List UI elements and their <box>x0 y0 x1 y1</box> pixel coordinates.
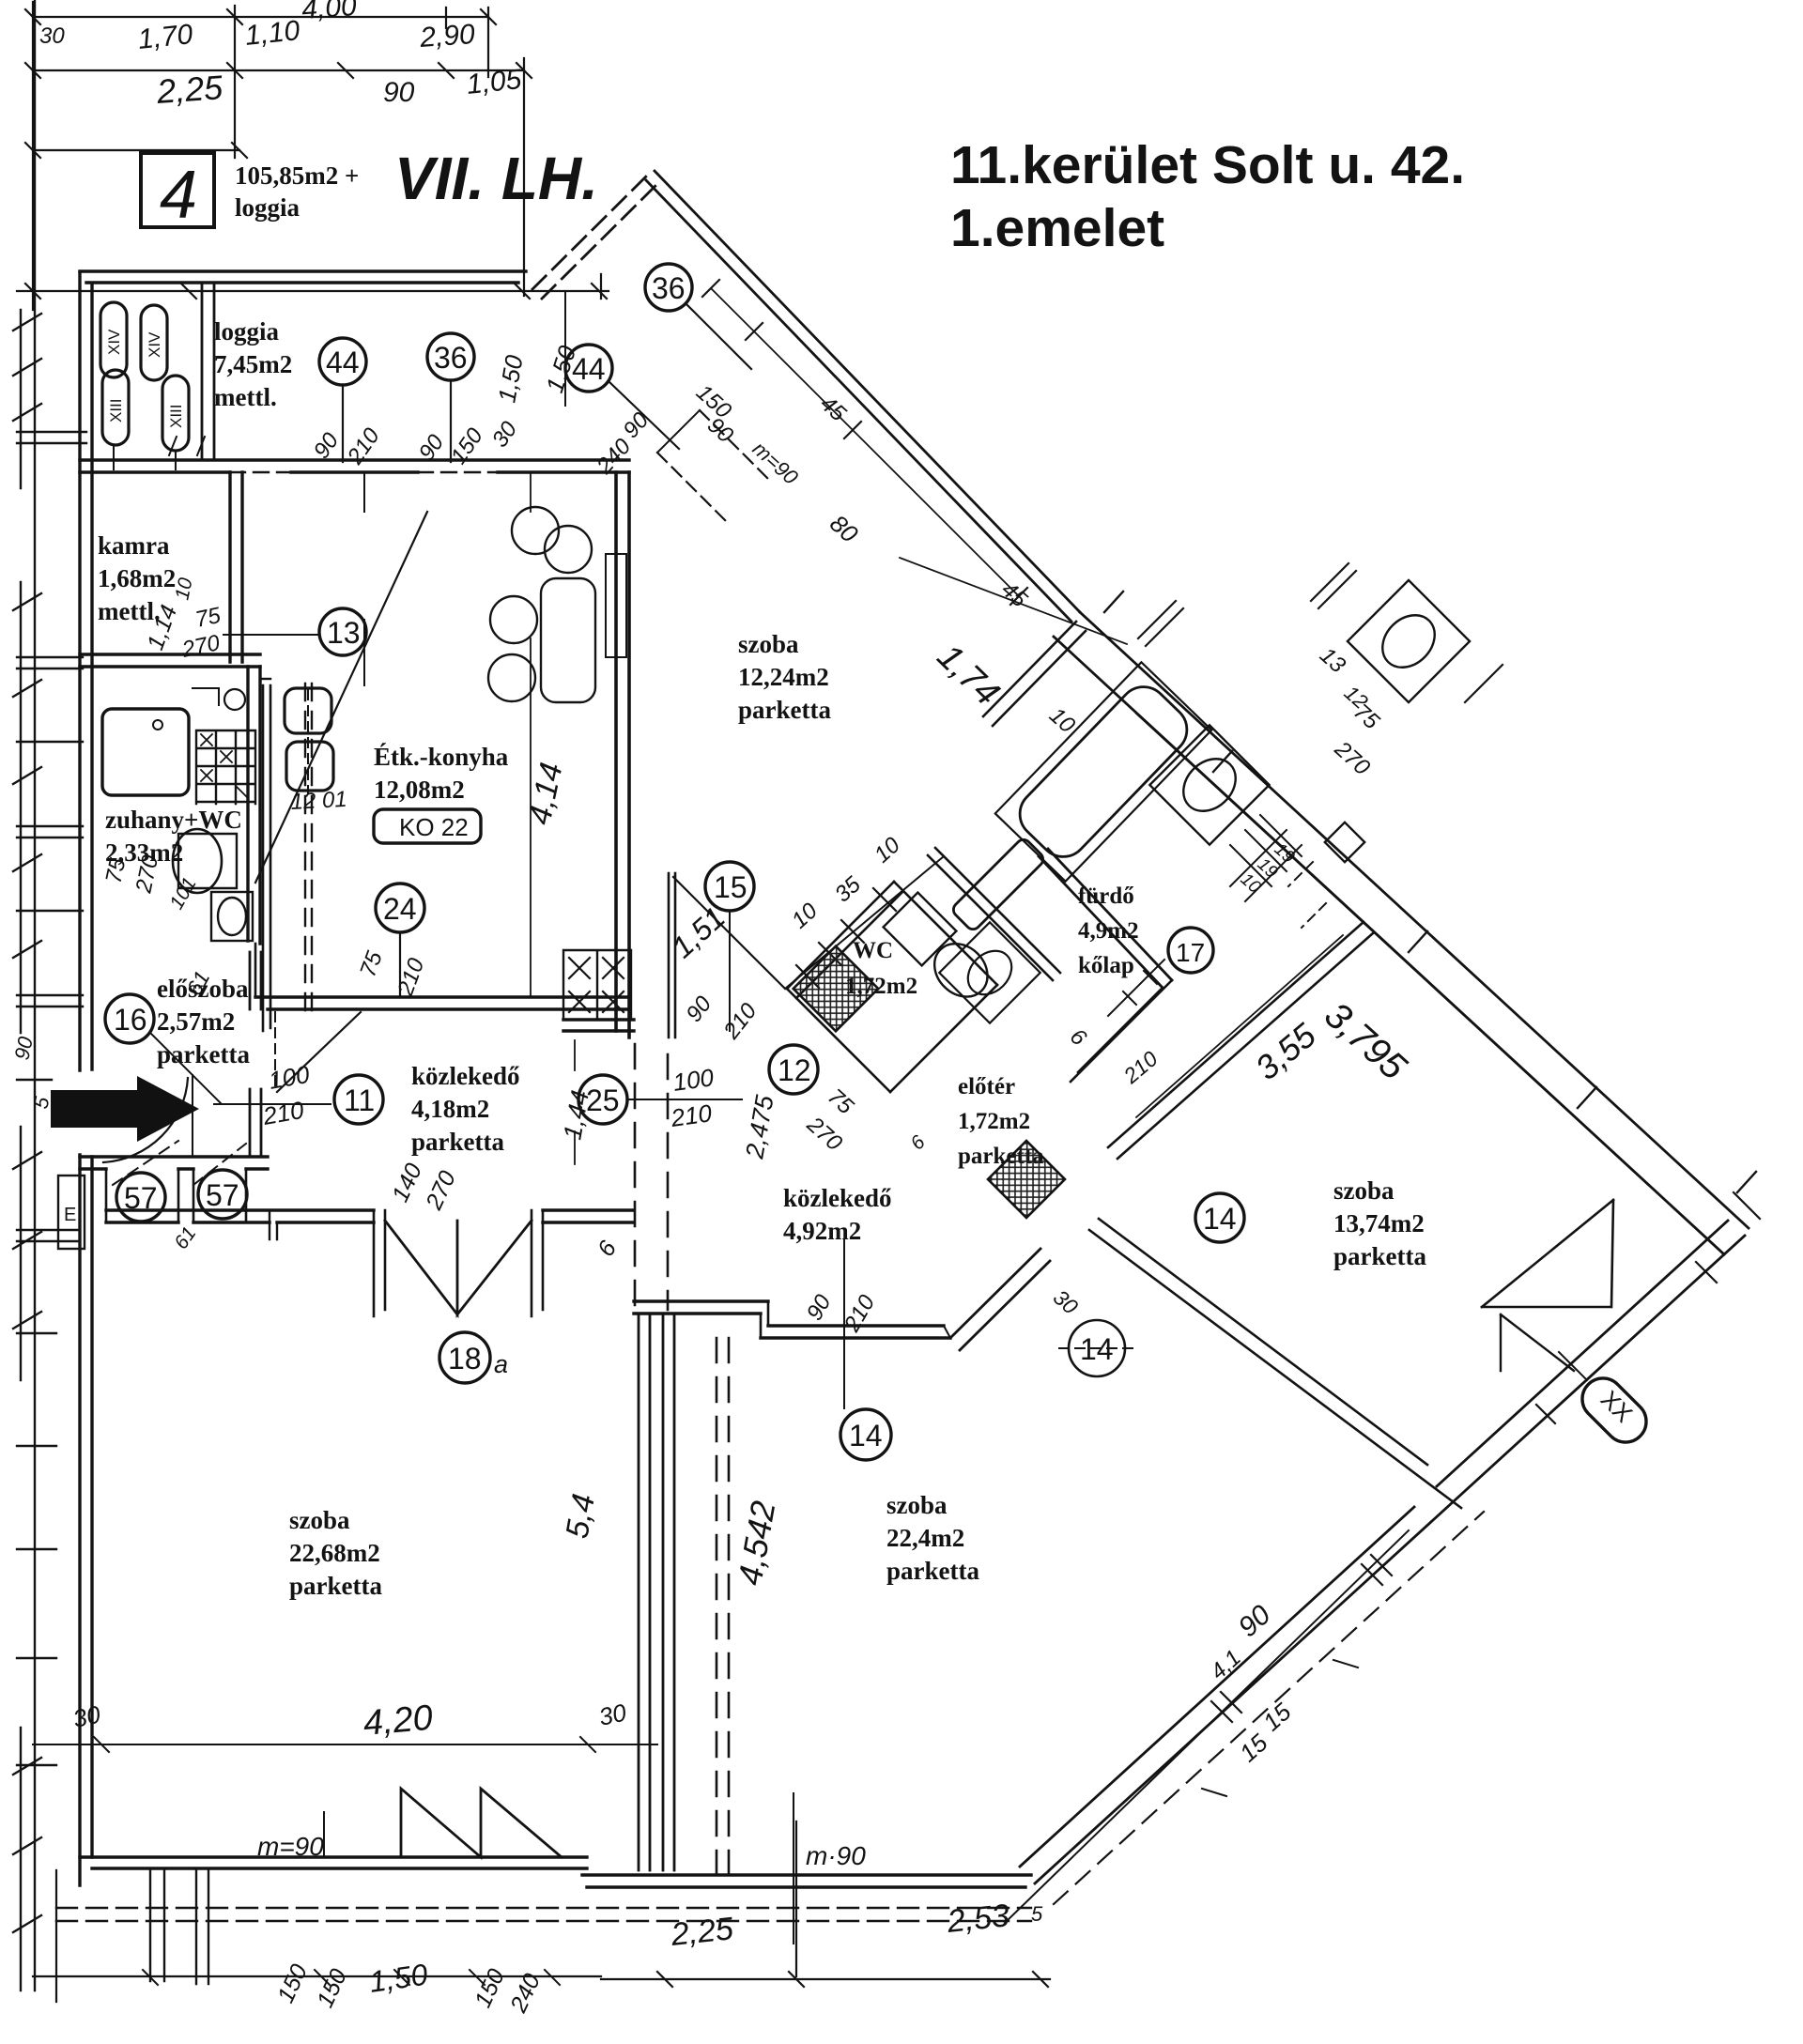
svg-text:KO 22: KO 22 <box>399 813 469 841</box>
svg-text:12: 12 <box>778 1053 811 1087</box>
svg-text:szoba: szoba <box>289 1506 350 1534</box>
svg-text:előtér: előtér <box>958 1074 1015 1099</box>
svg-text:kamra: kamra <box>98 531 170 560</box>
svg-text:fürdő: fürdő <box>1078 884 1134 909</box>
svg-text:XIII: XIII <box>107 398 125 423</box>
svg-text:44: 44 <box>572 352 606 386</box>
svg-text:57: 57 <box>206 1178 239 1212</box>
svg-text:5: 5 <box>1031 1902 1043 1926</box>
svg-text:44: 44 <box>326 346 360 379</box>
svg-text:2,25: 2,25 <box>669 1911 735 1953</box>
svg-text:210: 210 <box>669 1099 715 1132</box>
svg-text:szoba: szoba <box>886 1491 948 1519</box>
svg-text:parketta: parketta <box>886 1557 979 1585</box>
svg-text:11.kerület Solt u. 42.: 11.kerület Solt u. 42. <box>950 135 1465 195</box>
svg-text:105,85m2 +: 105,85m2 + <box>235 161 359 190</box>
svg-text:2,90: 2,90 <box>418 19 476 54</box>
svg-text:loggia: loggia <box>214 317 280 346</box>
svg-text:zuhany+WC: zuhany+WC <box>105 806 242 834</box>
svg-text:közlekedő: közlekedő <box>783 1184 892 1212</box>
svg-text:előszoba: előszoba <box>157 975 249 1003</box>
svg-text:16: 16 <box>114 1003 147 1037</box>
svg-text:15: 15 <box>714 870 747 904</box>
svg-text:parketta: parketta <box>738 696 831 724</box>
svg-text:24: 24 <box>383 892 417 926</box>
svg-text:1,70: 1,70 <box>136 19 194 55</box>
svg-text:Étk.-konyha: Étk.-konyha <box>374 743 509 771</box>
svg-text:2,25: 2,25 <box>155 68 225 111</box>
svg-text:4,9m2: 4,9m2 <box>1078 918 1139 944</box>
svg-text:7,45m2: 7,45m2 <box>214 350 292 378</box>
svg-text:E: E <box>64 1205 76 1225</box>
svg-text:90: 90 <box>383 77 415 108</box>
svg-text:4: 4 <box>160 158 197 233</box>
svg-text:kőlap: kőlap <box>1078 953 1134 978</box>
svg-text:14: 14 <box>1203 1202 1237 1236</box>
svg-text:parketta: parketta <box>289 1572 382 1600</box>
svg-text:13,74m2: 13,74m2 <box>1333 1209 1425 1237</box>
svg-text:XIII: XIII <box>167 404 185 428</box>
svg-text:11: 11 <box>344 1083 375 1117</box>
svg-text:1,72m2: 1,72m2 <box>958 1109 1030 1134</box>
svg-text:100: 100 <box>671 1063 717 1097</box>
svg-text:5,4: 5,4 <box>559 1491 602 1541</box>
svg-text:1,68m2: 1,68m2 <box>98 564 176 592</box>
svg-text:36: 36 <box>434 341 468 375</box>
svg-text:12 01: 12 01 <box>290 787 347 815</box>
svg-text:12,24m2: 12,24m2 <box>738 663 829 691</box>
svg-text:VII. LH.: VII. LH. <box>394 145 598 212</box>
svg-text:XIV: XIV <box>146 331 163 358</box>
svg-text:17: 17 <box>1176 938 1205 967</box>
svg-text:12,08m2: 12,08m2 <box>374 776 465 804</box>
svg-text:1,10: 1,10 <box>243 15 301 52</box>
svg-text:36: 36 <box>652 271 686 305</box>
svg-text:szoba: szoba <box>738 630 799 658</box>
svg-text:18: 18 <box>448 1342 482 1375</box>
svg-text:4,20: 4,20 <box>362 1698 434 1744</box>
svg-text:2,53: 2,53 <box>945 1898 1011 1940</box>
svg-text:XIV: XIV <box>105 329 123 355</box>
svg-text:a: a <box>494 1350 508 1378</box>
svg-text:parketta: parketta <box>1333 1242 1426 1270</box>
svg-text:4,92m2: 4,92m2 <box>783 1217 861 1245</box>
svg-text:1,05: 1,05 <box>465 64 523 100</box>
svg-text:m·90: m·90 <box>806 1841 866 1870</box>
svg-text:parketta: parketta <box>411 1128 504 1156</box>
svg-text:22,4m2: 22,4m2 <box>886 1524 964 1552</box>
svg-text:2,57m2: 2,57m2 <box>157 1007 235 1036</box>
svg-text:mettl.: mettl. <box>214 383 277 411</box>
svg-text:1,72m2: 1,72m2 <box>845 974 917 999</box>
svg-text:22,68m2: 22,68m2 <box>289 1539 380 1567</box>
svg-text:WC: WC <box>853 938 893 963</box>
svg-text:szoba: szoba <box>1333 1176 1395 1205</box>
svg-text:13: 13 <box>327 616 361 650</box>
svg-text:loggia: loggia <box>235 193 300 222</box>
svg-text:m=90: m=90 <box>257 1832 324 1861</box>
svg-text:4,18m2: 4,18m2 <box>411 1095 489 1123</box>
svg-text:4,00: 4,00 <box>300 0 358 25</box>
svg-text:14: 14 <box>849 1419 883 1452</box>
svg-text:30: 30 <box>39 23 65 49</box>
svg-text:1.emelet: 1.emelet <box>950 198 1164 258</box>
svg-text:közlekedő: közlekedő <box>411 1062 520 1090</box>
